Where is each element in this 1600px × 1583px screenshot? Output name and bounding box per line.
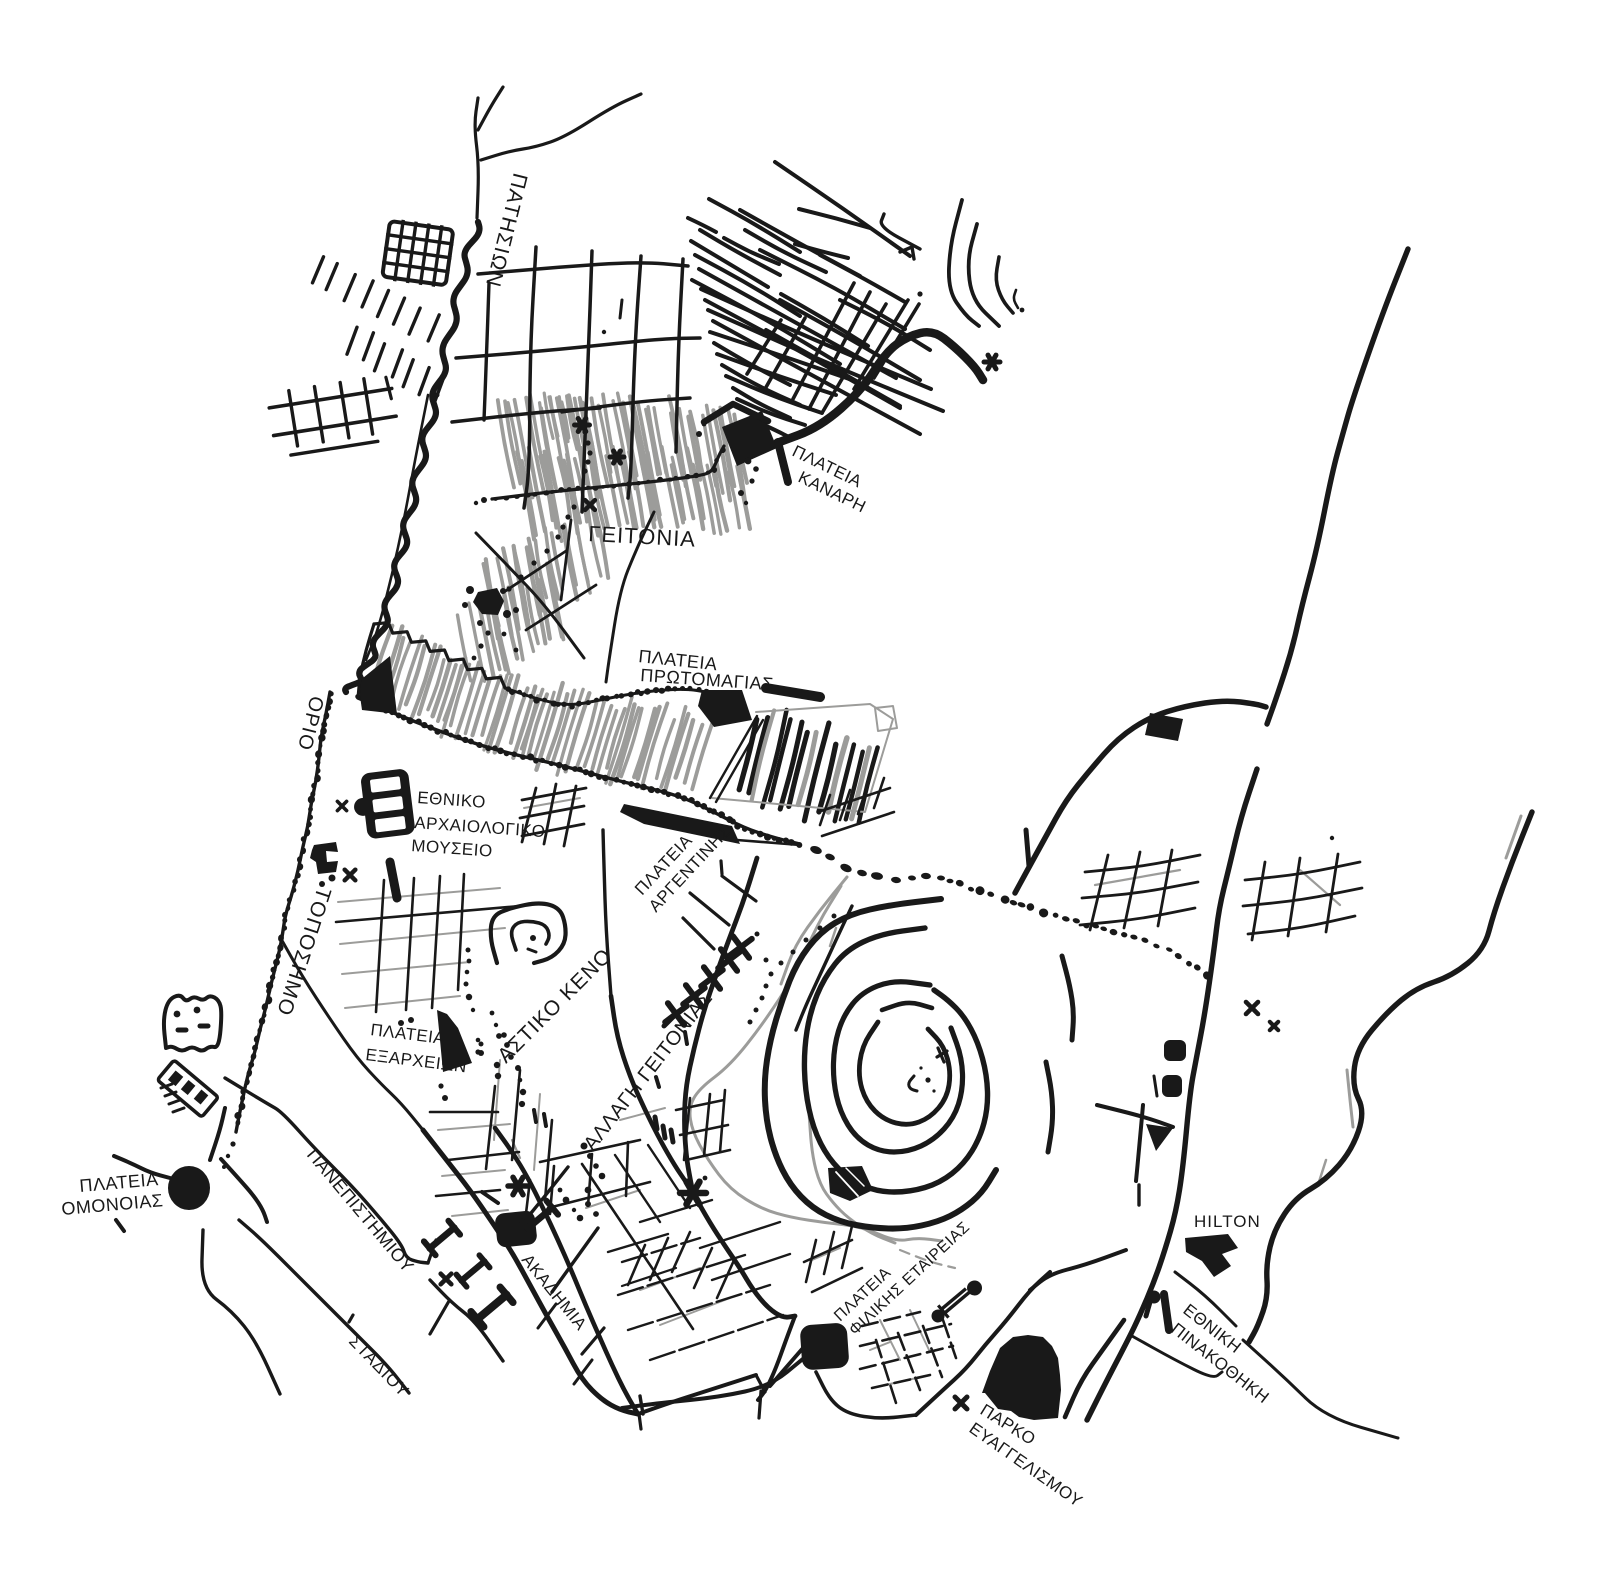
svg-text:HILTON: HILTON [1194,1212,1261,1231]
